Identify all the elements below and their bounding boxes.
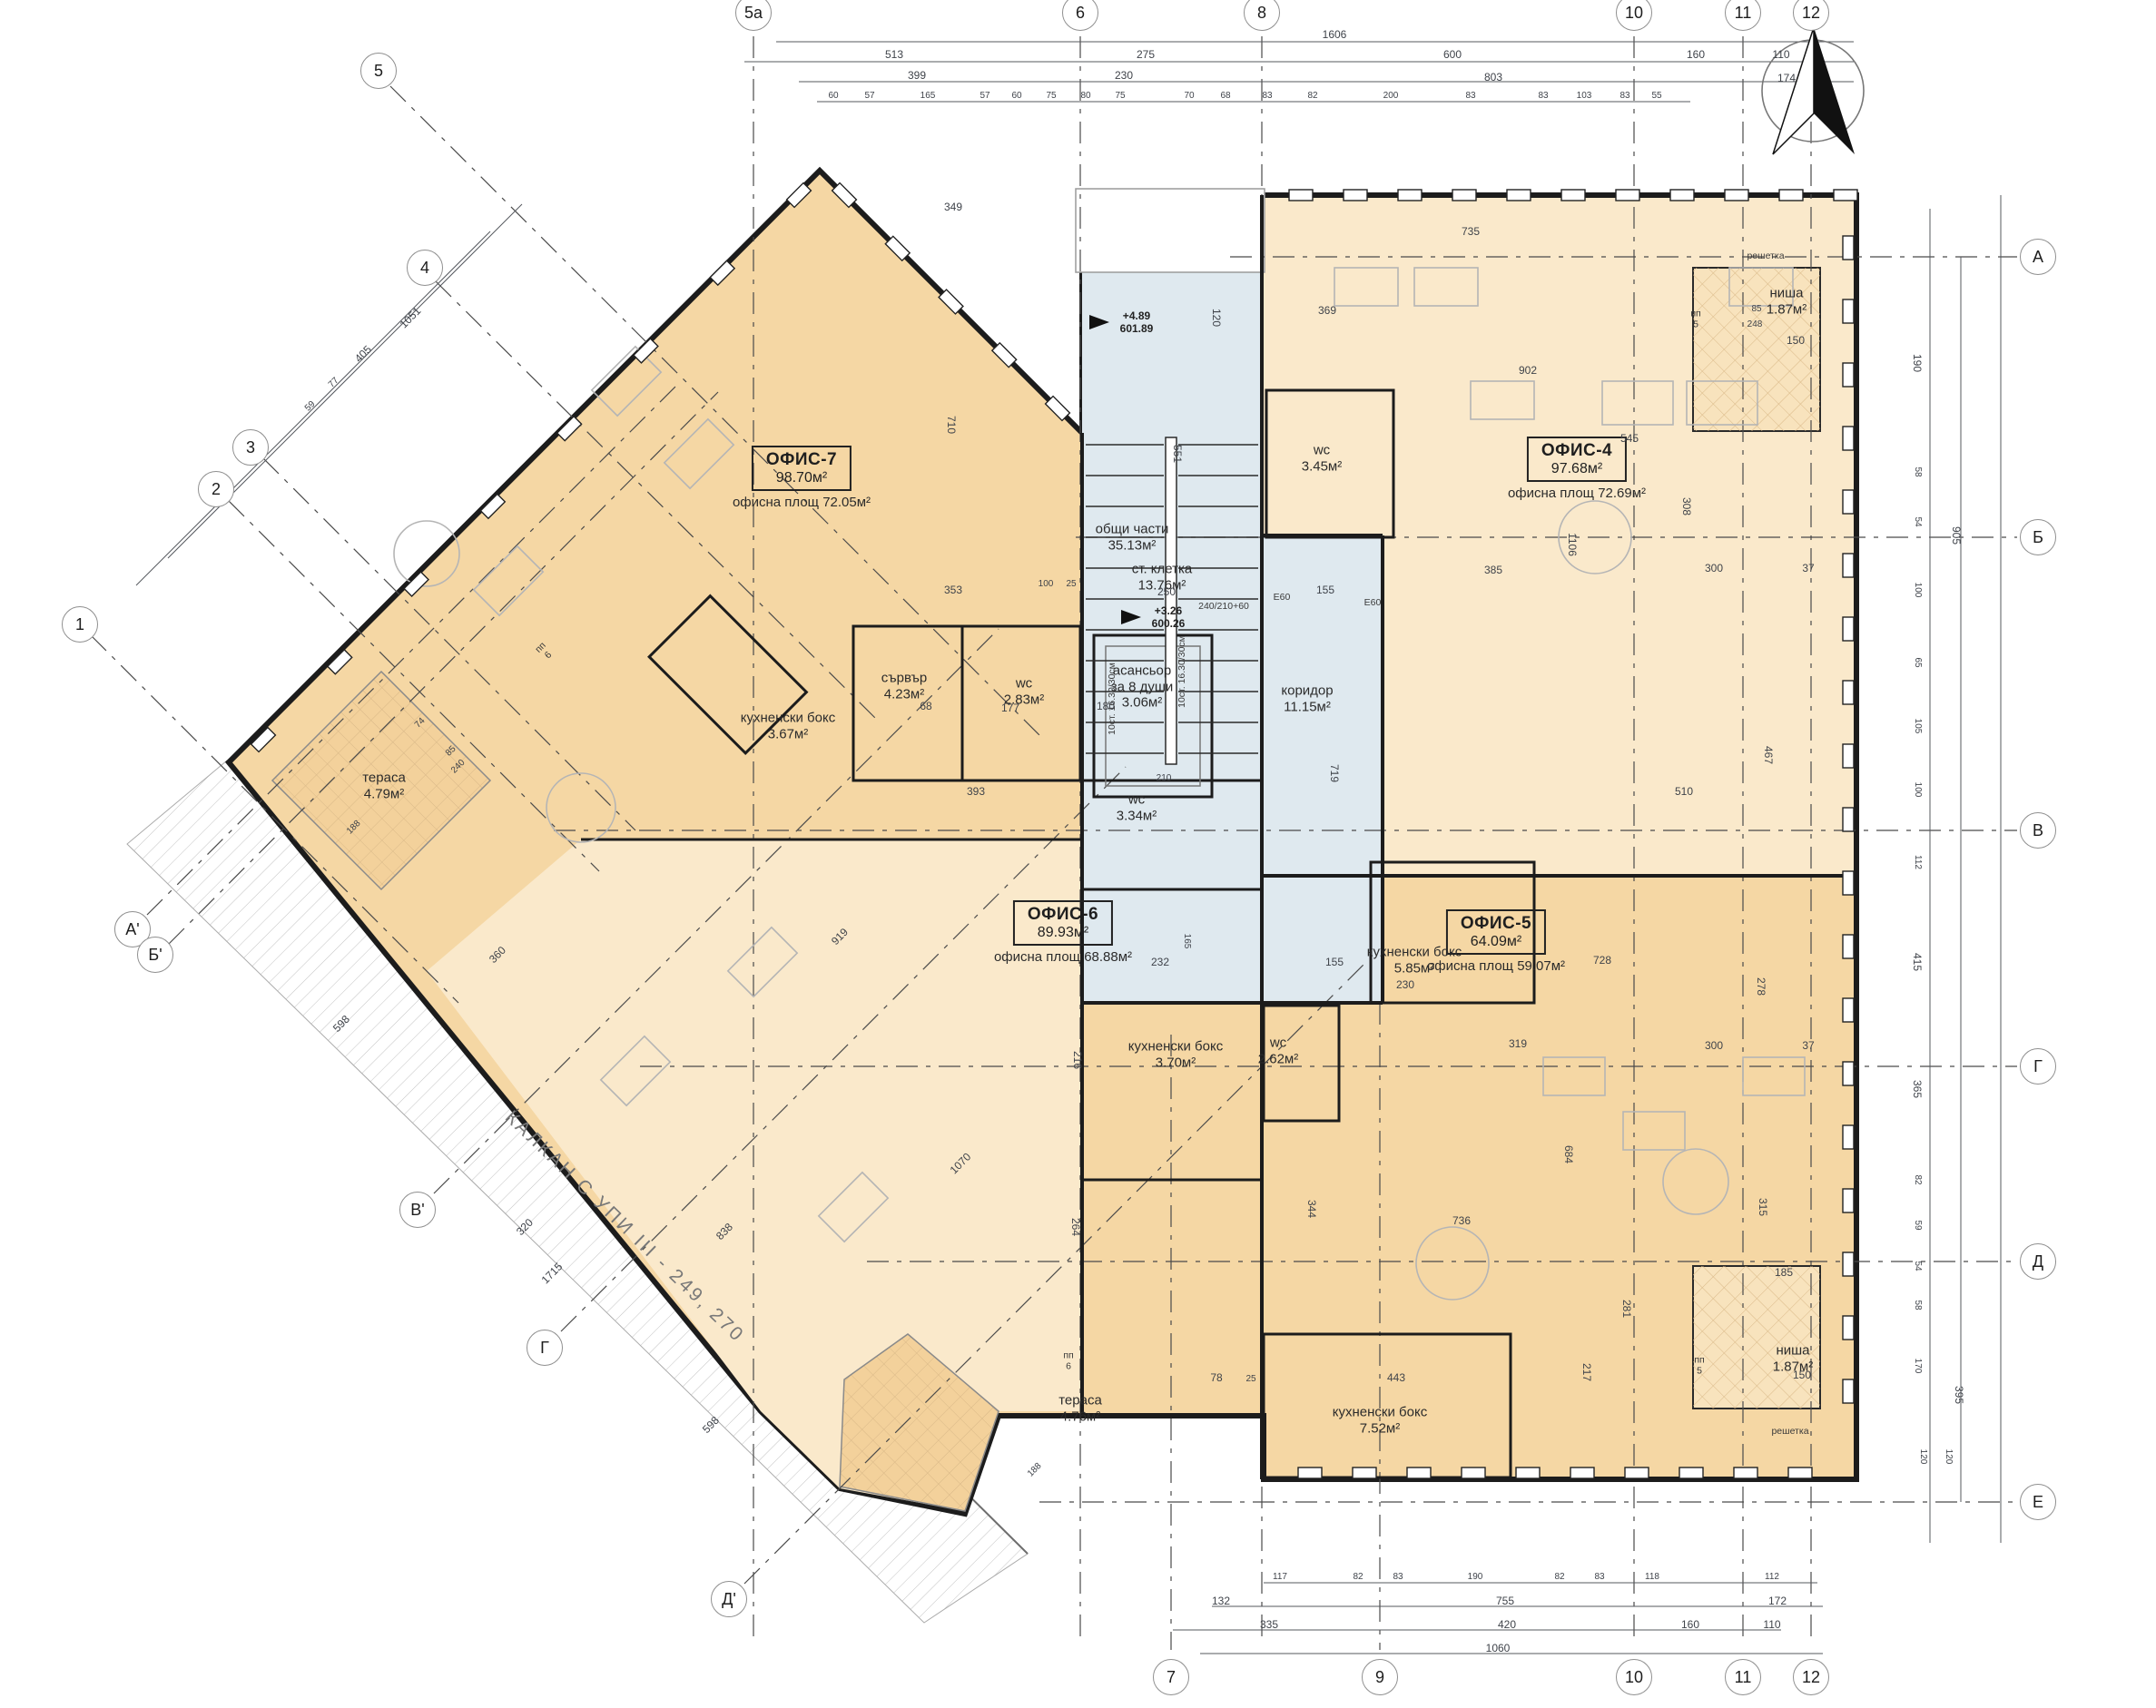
space-label: кухненски бокс 3.70м² [1128, 1038, 1223, 1070]
dimension-label: 60 [828, 91, 838, 102]
dimension-label: 250 [1157, 585, 1176, 598]
dimension-label: 74 [413, 716, 428, 731]
dimension-label: 83 [1538, 91, 1548, 102]
annotation-label: 10ст. 16.30/30см [1176, 635, 1187, 708]
dimension-label: 467 [1762, 746, 1775, 764]
dimension-label: 155 [1325, 956, 1344, 968]
dimension-label: 443 [1387, 1371, 1405, 1384]
annotation-label: решетка [1771, 1426, 1808, 1437]
dimension-label: 82 [1554, 1572, 1564, 1583]
dimension-label: 180 [1097, 700, 1115, 712]
dimension-label: 75 [1046, 91, 1056, 102]
dimension-label: 170 [1912, 1359, 1923, 1374]
dimension-label: 70 [1184, 91, 1194, 102]
dimension-label: 598 [700, 1414, 722, 1436]
axis-bubble-6: 6 [1062, 0, 1098, 31]
dimension-label: 54 [1912, 516, 1923, 526]
dimension-label: 188 [1026, 1461, 1044, 1479]
space-label: wc 2.62м² [1258, 1035, 1299, 1066]
dimension-label: 100 [1912, 782, 1923, 798]
dimension-label: 160 [1687, 48, 1705, 61]
axis-bubble-8: 8 [1244, 0, 1280, 31]
dimension-label: 68 [920, 700, 931, 712]
room-name: ОФИС-7 [766, 450, 837, 470]
axis-bubble-Д: Д [2020, 1243, 2056, 1280]
dimension-label: 510 [1675, 785, 1693, 798]
dimension-label: 150 [1787, 334, 1805, 347]
dimension-label: 513 [885, 48, 903, 61]
dimension-label: 248 [1747, 319, 1763, 330]
axis-bubble-12: 12 [1793, 1659, 1829, 1695]
dimension-label: 78 [1210, 1371, 1222, 1384]
dimension-label: 232 [1151, 956, 1169, 968]
dimension-label: 735 [1462, 225, 1480, 238]
dimension-label: 230 [1115, 69, 1133, 82]
axis-bubble-2: 2 [198, 471, 234, 507]
axis-bubble-Д': Д' [711, 1581, 747, 1617]
dimension-label: 385 [1484, 564, 1502, 576]
dimension-label: 120 [1943, 1449, 1954, 1465]
dimension-label: 57 [864, 91, 874, 102]
space-label: общи части 35.13м² [1096, 521, 1169, 553]
room-area: 98.70м² [766, 470, 837, 486]
level-marker: +4.89 601.89 [1120, 309, 1154, 335]
dimension-label: 65 [1912, 657, 1923, 667]
dimension-label: 155 [1316, 584, 1334, 596]
dimension-label: 369 [1318, 304, 1336, 317]
room-sub-area: офисна площ 72.69м² [1508, 486, 1646, 502]
dimension-label: 1106 [1566, 533, 1579, 556]
axis-bubble-Е: Е [2020, 1484, 2056, 1520]
dimension-label: 353 [944, 584, 962, 596]
room-area: 97.68м² [1541, 461, 1612, 477]
dimension-label: 118 [1645, 1572, 1659, 1583]
dimension-label: 112 [1765, 1572, 1779, 1583]
dimension-label: 120 [1210, 309, 1223, 327]
axis-bubble-10: 10 [1616, 1659, 1652, 1695]
dimension-label: 217 [1580, 1363, 1593, 1381]
annotation-label: пп 6 [1063, 1350, 1073, 1373]
axis-bubble-Б: Б [2020, 519, 2056, 555]
dimension-label: 25 [1245, 1374, 1255, 1385]
axis-bubble-7: 7 [1153, 1659, 1189, 1695]
dimension-label: 395 [1953, 1386, 1965, 1404]
annotation-label: Е60 [1364, 597, 1382, 608]
dimension-label: 803 [1484, 71, 1502, 83]
dimension-label: 150 [1793, 1369, 1811, 1381]
annotation-label: пп 6 [533, 640, 556, 663]
dimension-label: 344 [1305, 1200, 1318, 1218]
dimension-label: 132 [1212, 1595, 1230, 1607]
dimension-label: 684 [1562, 1145, 1575, 1163]
dimension-label: 393 [967, 785, 985, 798]
dimension-label: 117 [1273, 1572, 1287, 1583]
axis-bubble-Б': Б' [137, 937, 173, 973]
dimension-label: 551 [1171, 445, 1184, 463]
dimension-label: 83 [1465, 91, 1475, 102]
dimension-label: 54 [1912, 1261, 1923, 1271]
dimension-label: 545 [1620, 432, 1639, 445]
dimension-label: 210 [1157, 773, 1172, 784]
axis-bubble-4: 4 [407, 250, 443, 286]
dimension-label: 58 [1912, 466, 1923, 476]
dimension-label: 598 [330, 1013, 352, 1035]
space-label: ниша 1.87м² [1767, 285, 1807, 317]
dimension-label: 80 [1080, 91, 1090, 102]
dimension-label: 728 [1593, 954, 1611, 967]
dimension-label: 405 [352, 343, 374, 365]
axis-bubble-В: В [2020, 812, 2056, 849]
dimension-label: 838 [714, 1221, 735, 1242]
room-name: ОФИС-5 [1461, 914, 1531, 934]
dimension-label: 60 [1011, 91, 1021, 102]
dimension-label: 902 [1519, 364, 1537, 377]
axis-bubble-9: 9 [1362, 1659, 1398, 1695]
dimension-label: 216 [1071, 1051, 1084, 1069]
space-label: кухненски бокс 5.85м² [1367, 944, 1462, 976]
dimension-label: 160 [1681, 1618, 1699, 1631]
dimension-label: 399 [908, 69, 926, 82]
dimension-label: 37 [1802, 1039, 1814, 1052]
space-label: коридор 11.15м² [1281, 682, 1333, 714]
dimension-label: 719 [1328, 764, 1341, 782]
annotation-label: пп 5 [1694, 1355, 1704, 1378]
space-label: кухненски бокс 3.67м² [741, 710, 835, 741]
dimension-label: 83 [1393, 1572, 1403, 1583]
dimension-label: 190 [1911, 354, 1924, 372]
space-label: wc 3.34м² [1117, 791, 1157, 823]
dimension-label: 1060 [1486, 1642, 1511, 1654]
dimension-label: 349 [944, 201, 962, 213]
room-area: 64.09м² [1461, 934, 1531, 950]
label-layer: КАЛКАН С УПИ III - 249, 270 ОФИС-798.70м… [0, 0, 2156, 1708]
dimension-label: 1051 [398, 305, 424, 331]
dimension-label: 110 [1772, 48, 1789, 61]
dimension-label: 57 [980, 91, 989, 102]
dimension-label: 415 [1911, 953, 1924, 971]
level-marker: +3.26 600.26 [1152, 604, 1186, 630]
dimension-label: 85 [1751, 304, 1761, 315]
dimension-label: 300 [1705, 1039, 1723, 1052]
dimension-label: 83 [1619, 91, 1629, 102]
dimension-label: 736 [1452, 1214, 1471, 1227]
site-boundary-label: КАЛКАН С УПИ III - 249, 270 [500, 1106, 748, 1347]
dimension-label: 300 [1705, 562, 1723, 574]
axis-bubble-5: 5 [360, 53, 397, 89]
dimension-label: 905 [1950, 526, 1963, 545]
room-label-ОФИС-7: ОФИС-798.70м²офисна площ 72.05м² [733, 446, 871, 511]
room-label-ОФИС-4: ОФИС-497.68м²офисна площ 72.69м² [1508, 437, 1646, 502]
dimension-label: 172 [1768, 1595, 1787, 1607]
dimension-label: 85 [444, 744, 458, 759]
dimension-label: 190 [1468, 1572, 1483, 1583]
dimension-label: 919 [829, 926, 851, 947]
dimension-label: 165 [1181, 934, 1192, 949]
dimension-label: 360 [487, 944, 508, 966]
dimension-label: 77 [327, 376, 341, 390]
axis-bubble-1: 1 [62, 606, 98, 643]
room-name: ОФИС-6 [1028, 905, 1098, 925]
room-area: 89.93м² [1028, 925, 1098, 941]
axis-bubble-А: А [2020, 239, 2056, 275]
dimension-label: 177 [1001, 702, 1019, 714]
dimension-label: 278 [1755, 977, 1767, 996]
room-name: ОФИС-4 [1541, 441, 1612, 461]
dimension-label: 335 [1260, 1618, 1278, 1631]
dimension-label: 188 [345, 819, 363, 837]
dimension-label: 103 [1577, 91, 1592, 102]
dimension-label: 58 [1912, 1300, 1923, 1310]
room-label-ОФИС-6: ОФИС-689.93м²офисна площ 68.88м² [994, 900, 1132, 966]
dimension-label: 68 [1220, 91, 1230, 102]
space-label: тераса 4.76м² [1058, 1392, 1102, 1424]
axis-bubble-3: 3 [232, 429, 269, 466]
dimension-label: 75 [1115, 91, 1125, 102]
dimension-label: 315 [1757, 1198, 1769, 1216]
dimension-label: 82 [1353, 1572, 1363, 1583]
dimension-label: 1070 [948, 1151, 974, 1177]
dimension-label: 165 [920, 91, 936, 102]
dimension-label: 185 [1775, 1266, 1793, 1279]
annotation-label: 240/210+60 [1198, 601, 1249, 612]
axis-bubble-11: 11 [1725, 0, 1761, 31]
dimension-label: 112 [1912, 855, 1923, 869]
annotation-label: Е60 [1274, 592, 1291, 603]
room-sub-area: офисна площ 72.05м² [733, 495, 871, 511]
dimension-label: 264 [1069, 1218, 1082, 1236]
space-label: кухненски бокс 7.52м² [1333, 1404, 1427, 1436]
axis-bubble-11: 11 [1725, 1659, 1761, 1695]
dimension-label: 174 [1777, 72, 1796, 84]
axis-bubble-10: 10 [1616, 0, 1652, 31]
floor-plan-page: КАЛКАН С УПИ III - 249, 270 ОФИС-798.70м… [0, 0, 2156, 1708]
dimension-label: 281 [1620, 1300, 1633, 1318]
dimension-label: 420 [1498, 1618, 1516, 1631]
dimension-label: 25 [1066, 579, 1076, 590]
axis-bubble-Г: Г [2020, 1048, 2056, 1085]
axis-bubble-В': В' [399, 1192, 436, 1228]
annotation-label: пп 5 [1690, 309, 1700, 331]
axis-bubble-12: 12 [1793, 0, 1829, 31]
space-label: wc 3.45м² [1302, 442, 1343, 474]
dimension-label: 319 [1509, 1037, 1527, 1050]
dimension-label: 59 [303, 399, 318, 414]
dimension-label: 110 [1763, 1618, 1780, 1631]
axis-bubble-Г: Г [527, 1330, 563, 1366]
dimension-label: 82 [1912, 1174, 1923, 1184]
dimension-label: 1715 [539, 1261, 566, 1287]
dimension-label: 55 [1651, 91, 1661, 102]
dimension-label: 365 [1911, 1080, 1924, 1098]
dimension-label: 755 [1496, 1595, 1514, 1607]
dimension-label: 105 [1912, 719, 1923, 734]
dimension-label: 200 [1383, 91, 1399, 102]
dimension-label: 240 [449, 758, 468, 776]
space-label: тераса 4.79м² [362, 770, 406, 801]
dimension-label: 308 [1680, 497, 1693, 515]
dimension-label: 83 [1594, 1572, 1604, 1583]
dimension-label: 710 [945, 416, 958, 434]
space-label: асансьор за 8 души 3.06м² [1111, 663, 1174, 711]
dimension-label: 100 [1039, 579, 1054, 590]
axis-bubble-5а: 5а [735, 0, 772, 31]
dimension-label: 1606 [1323, 28, 1347, 41]
annotation-label: решетка [1747, 250, 1784, 261]
room-sub-area: офисна площ 68.88м² [994, 949, 1132, 966]
dimension-label: 320 [514, 1216, 536, 1238]
dimension-label: 275 [1137, 48, 1155, 61]
space-label: сървър 4.23м² [881, 670, 927, 702]
dimension-label: 83 [1262, 91, 1272, 102]
dimension-label: 100 [1912, 583, 1923, 598]
dimension-label: 600 [1443, 48, 1462, 61]
dimension-label: 82 [1307, 91, 1317, 102]
dimension-label: 59 [1912, 1220, 1923, 1230]
dimension-label: 120 [1917, 1449, 1928, 1465]
dimension-label: 37 [1802, 562, 1814, 574]
dimension-label: 230 [1396, 978, 1414, 991]
